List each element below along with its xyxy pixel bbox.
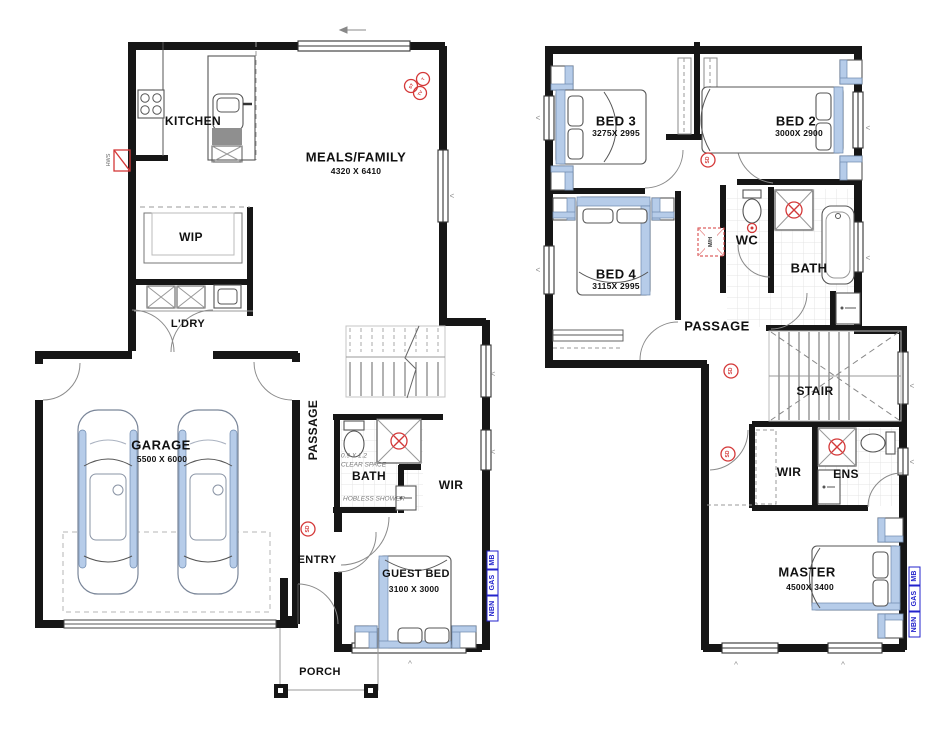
mb-label: MB <box>911 570 918 581</box>
room-label-garage: GARAGE <box>131 438 190 453</box>
tv-point-label: TV <box>416 89 423 96</box>
window-mark: < <box>536 114 541 123</box>
floorplan-drawing: < < < ^ <box>0 0 942 731</box>
room-label-master: MASTER <box>778 565 836 580</box>
window-mark: < <box>536 266 541 275</box>
room-dims-garage: 5500 X 6000 <box>137 454 187 464</box>
room-label-guest: GUEST BED <box>382 568 450 580</box>
room-label-bath-gf: BATH <box>352 469 386 483</box>
toilet-icon <box>861 432 895 454</box>
room-label-bed4: BED 4 <box>596 267 637 282</box>
smoke-detector-gf: SD <box>301 522 315 536</box>
room-label-bed2: BED 2 <box>776 114 816 129</box>
room-label-bed3: BED 3 <box>596 114 636 129</box>
svg-text:SD: SD <box>728 367 734 374</box>
svg-text:SD: SD <box>705 156 711 163</box>
gf-garage-door <box>64 620 276 628</box>
room-dims-master: 4500X 3400 <box>786 582 834 592</box>
room-label-passage-uf: PASSAGE <box>684 319 749 334</box>
smoke-detector-uf-3: SD <box>721 447 735 461</box>
room-label-stair: STAIR <box>796 384 833 398</box>
room-label-ens: ENS <box>833 467 859 481</box>
room-label-passage-gf: PASSAGE <box>306 400 320 461</box>
shower-icon <box>775 190 813 230</box>
t-point-label: T <box>420 76 426 81</box>
upper-floor-plan: < < < < < < ^ ^ <box>536 42 920 670</box>
room-label-porch: PORCH <box>299 666 341 678</box>
room-label-wip: WIP <box>179 230 203 244</box>
vanity-icon <box>836 293 860 324</box>
hws-label: HWS <box>106 153 112 166</box>
room-dims-bed3: 3275X 2995 <box>592 128 640 138</box>
manhole-symbol: M/H <box>698 228 724 256</box>
cooktop-icon <box>138 90 164 118</box>
window-mark: ^ <box>841 661 845 670</box>
car-1 <box>78 410 138 594</box>
svg-text:SD: SD <box>725 450 731 457</box>
smoke-detector-uf-2: SD <box>724 364 738 378</box>
room-label-wir-gf: WIR <box>439 478 464 492</box>
window-mark: < <box>491 370 496 379</box>
floorplan-canvas: < < < ^ <box>0 0 942 731</box>
room-label-wir-uf: WIR <box>777 465 802 479</box>
room-label-bath-uf: BATH <box>791 261 828 276</box>
window-mark: < <box>910 382 915 391</box>
room-label-kitchen: KITCHEN <box>165 114 221 128</box>
room-dims-meals: 4320 X 6410 <box>331 166 381 176</box>
window-mark: < <box>491 448 496 457</box>
mb-label: MB <box>489 554 496 565</box>
room-dims-bed4: 3115X 2995 <box>592 281 639 291</box>
window-mark: < <box>910 458 915 467</box>
shower-icon <box>818 428 856 466</box>
note-clear-dims: 0.9 X 1.2 <box>341 453 367 460</box>
uf-stairs <box>769 331 901 421</box>
hws-symbol: HWS <box>106 150 130 171</box>
room-dims-guest: 3100 X 3000 <box>389 584 439 594</box>
services-label-gf: NBN GAS MB <box>487 551 498 621</box>
window-mark: < <box>450 192 455 201</box>
mh-label: M/H <box>708 237 714 247</box>
room-label-meals: MEALS/FAMILY <box>306 150 406 165</box>
window-mark: < <box>866 254 871 263</box>
dishwasher <box>212 128 242 145</box>
svg-text:SD: SD <box>305 525 311 532</box>
nbn-label: NBN <box>489 601 496 617</box>
laundry-fixtures <box>134 285 253 311</box>
smoke-detector-uf-1: SD <box>701 153 715 167</box>
window-mark: < <box>866 124 871 133</box>
room-dims-bed2: 3000X 2900 <box>775 128 823 138</box>
services-label-uf: NBN GAS MB <box>909 567 920 637</box>
st-point-label: ST <box>407 82 414 90</box>
room-label-wc: WC <box>736 233 759 248</box>
media-points-symbol: ST T TV <box>405 73 430 100</box>
shower-icon <box>377 419 421 463</box>
slider-arrow <box>340 27 366 33</box>
nbn-label: NBN <box>911 617 918 633</box>
note-hobless-shower: HOBLESS SHOWER <box>343 496 405 503</box>
kitchen-fixtures <box>138 42 256 162</box>
room-label-entry: ENTRY <box>298 554 337 566</box>
room-label-ldry: L'DRY <box>171 318 205 330</box>
gf-stairs <box>346 326 445 398</box>
ground-floor-plan: < < < ^ <box>37 27 498 698</box>
window-mark: ^ <box>408 660 412 669</box>
gas-label: GAS <box>911 590 918 606</box>
note-clear-space: CLEAR SPACE <box>341 462 387 469</box>
window-mark: ^ <box>734 661 738 670</box>
gas-label: GAS <box>489 574 496 590</box>
